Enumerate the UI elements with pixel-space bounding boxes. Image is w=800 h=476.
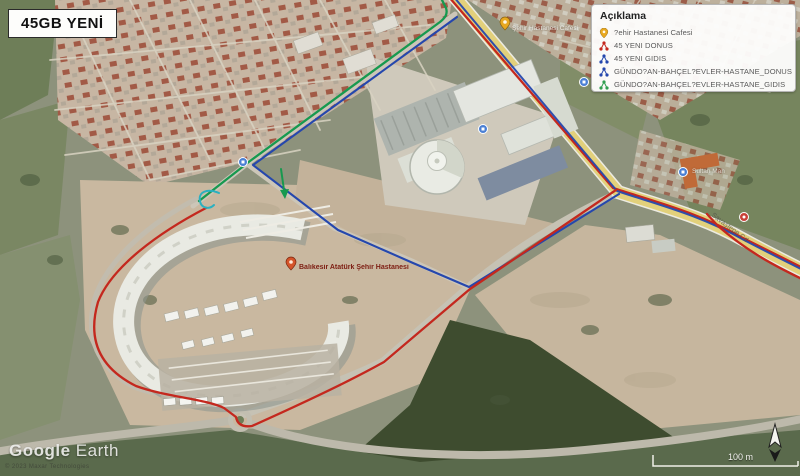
legend-item-45-gidis: 45 YENI GIDIS (599, 52, 788, 65)
watermark-google: Google (9, 441, 71, 460)
scale-label: 100 m (728, 452, 753, 462)
legend-item-label: GÜNDO?AN-BAHÇEL?EVLER-HASTANE_GIDIS (614, 80, 785, 89)
legend-item-label: ?ehir Hastanesi Cafesi (614, 28, 693, 37)
title-box: 45GB YENİ (8, 9, 117, 38)
google-earth-watermark: Google Earth (9, 441, 119, 461)
map-screenshot: Şehir Hastanesi Cafesi Balıkesir Atatürk… (0, 0, 800, 476)
watermark-earth: Earth (76, 441, 119, 460)
copyright-text: © 2023 Maxar Technologies (5, 464, 89, 470)
legend-item-label: 45 YENI DONUS (614, 41, 673, 50)
legend-item-gundogan-gidis: GÜNDO?AN-BAHÇEL?EVLER-HASTANE_GIDIS (599, 78, 788, 91)
legend-item-45-donus: 45 YENI DONUS (599, 39, 788, 52)
legend-title: Açıklama (600, 10, 788, 22)
legend-item-label: 45 YENI GIDIS (614, 54, 666, 63)
legend-item-label: GÜNDO?AN-BAHÇEL?EVLER-HASTANE_DONUS (614, 67, 792, 76)
route-icon (599, 54, 609, 64)
route-icon (599, 41, 609, 51)
legend-item-gundogan-donus: GÜNDO?AN-BAHÇEL?EVLER-HASTANE_DONUS (599, 65, 788, 78)
route-icon (599, 67, 609, 77)
place-pin-icon (599, 28, 609, 38)
route-icon (599, 80, 609, 90)
legend-item-cafe: ?ehir Hastanesi Cafesi (599, 26, 788, 39)
legend-panel: Açıklama ?ehir Hastanesi Cafesi 45 YENI … (591, 4, 796, 92)
